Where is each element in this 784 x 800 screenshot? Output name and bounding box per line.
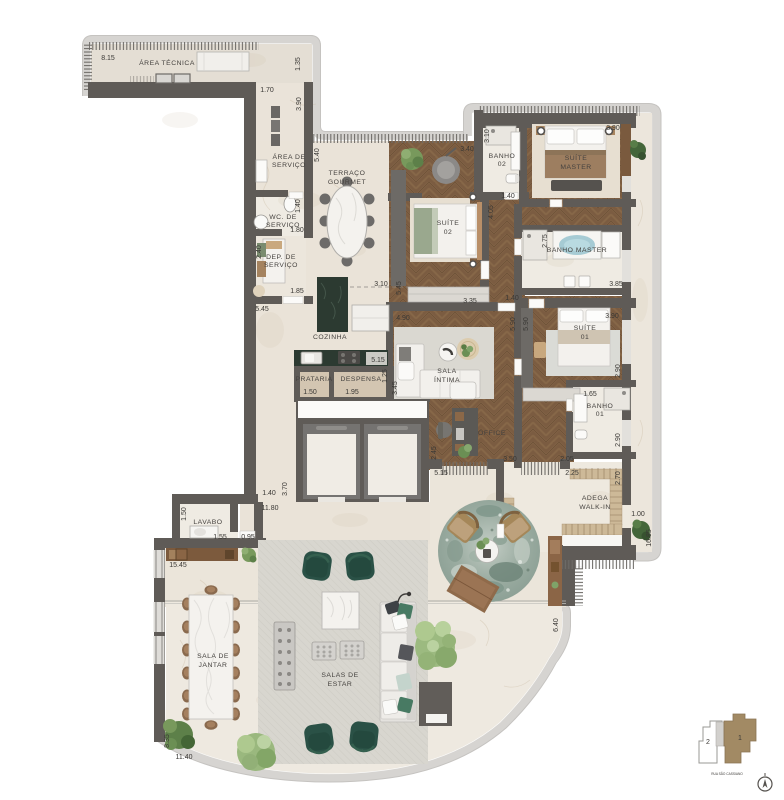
svg-text:11.40: 11.40 (176, 754, 193, 761)
svg-text:ÁREA TÉCNICA: ÁREA TÉCNICA (139, 58, 195, 67)
svg-text:ÍNTIMA: ÍNTIMA (434, 375, 460, 384)
svg-text:5.45: 5.45 (255, 306, 269, 313)
svg-text:PRATARIA: PRATARIA (296, 376, 333, 383)
svg-text:SALAS DE: SALAS DE (321, 672, 358, 679)
svg-text:1.65: 1.65 (583, 391, 597, 398)
svg-text:1.50: 1.50 (303, 389, 317, 396)
svg-text:2.45: 2.45 (431, 446, 438, 460)
svg-text:1.40: 1.40 (262, 490, 276, 497)
svg-text:2.75: 2.75 (542, 234, 549, 248)
svg-text:02: 02 (498, 161, 507, 168)
svg-text:0.95: 0.95 (241, 534, 255, 541)
svg-text:16.85: 16.85 (646, 529, 653, 547)
svg-text:2: 2 (706, 739, 710, 746)
svg-text:5.90: 5.90 (510, 317, 517, 331)
svg-text:GOURMET: GOURMET (328, 179, 366, 186)
svg-text:1.40: 1.40 (295, 199, 302, 213)
svg-text:SALA DE: SALA DE (197, 653, 229, 660)
svg-text:3.70: 3.70 (282, 482, 289, 496)
svg-text:1.35: 1.35 (295, 57, 302, 71)
svg-text:2.70: 2.70 (615, 471, 622, 485)
svg-text:DESPENSA: DESPENSA (340, 376, 381, 383)
svg-text:1.40: 1.40 (505, 295, 519, 302)
svg-text:3.10: 3.10 (484, 129, 491, 143)
svg-text:5.15: 5.15 (434, 470, 448, 477)
svg-text:3.90: 3.90 (605, 313, 619, 320)
svg-text:3.90: 3.90 (606, 125, 620, 132)
svg-text:COZINHA: COZINHA (313, 334, 347, 341)
svg-text:3.85: 3.85 (609, 281, 623, 288)
svg-text:BANHO: BANHO (587, 403, 614, 410)
svg-text:11.80: 11.80 (262, 505, 279, 512)
svg-text:3.10: 3.10 (374, 281, 388, 288)
svg-text:1.95: 1.95 (345, 389, 359, 396)
svg-text:6.40: 6.40 (553, 618, 560, 632)
svg-text:WALK-IN: WALK-IN (579, 504, 611, 511)
svg-text:5.90: 5.90 (523, 317, 530, 331)
svg-text:SALA: SALA (437, 368, 456, 375)
svg-text:1.80: 1.80 (290, 227, 304, 234)
svg-text:TERRAÇO: TERRAÇO (329, 170, 366, 177)
svg-text:1.40: 1.40 (501, 193, 515, 200)
svg-text:4.90: 4.90 (396, 315, 410, 322)
svg-text:SERVIÇO: SERVIÇO (264, 262, 298, 269)
svg-text:2.40: 2.40 (256, 245, 263, 259)
svg-text:1.85: 1.85 (290, 288, 304, 295)
svg-text:1.55: 1.55 (213, 534, 227, 541)
svg-text:ADEGA: ADEGA (582, 495, 608, 502)
svg-text:02: 02 (444, 229, 453, 236)
svg-text:MASTER: MASTER (560, 164, 591, 171)
svg-text:4.05: 4.05 (488, 205, 495, 219)
svg-text:BANHO: BANHO (489, 153, 516, 160)
svg-text:8.15: 8.15 (101, 55, 115, 62)
svg-text:SUÍTE: SUÍTE (437, 218, 460, 227)
svg-text:BANHO MASTER: BANHO MASTER (547, 247, 607, 254)
svg-text:ESTAR: ESTAR (328, 681, 353, 688)
svg-text:WC. DE: WC. DE (269, 214, 297, 221)
svg-text:2.90: 2.90 (615, 433, 622, 447)
svg-text:5.40: 5.40 (314, 148, 321, 162)
svg-text:01: 01 (596, 411, 605, 418)
svg-text:5.45: 5.45 (396, 281, 403, 295)
svg-text:SUÍTE: SUÍTE (574, 323, 597, 332)
svg-text:JANTAR: JANTAR (199, 662, 228, 669)
svg-text:SUÍTE: SUÍTE (565, 153, 588, 162)
svg-text:1.50: 1.50 (181, 507, 188, 521)
svg-text:3.90: 3.90 (296, 97, 303, 111)
svg-text:2.90: 2.90 (615, 364, 622, 378)
svg-text:1: 1 (738, 735, 742, 742)
svg-text:SERVIÇO: SERVIÇO (272, 162, 306, 169)
svg-text:OFFICE: OFFICE (478, 430, 506, 437)
svg-text:RUA SÃO CASSIANO: RUA SÃO CASSIANO (711, 771, 743, 776)
svg-text:5.15: 5.15 (371, 357, 385, 364)
svg-text:DEP. DE: DEP. DE (266, 254, 296, 261)
svg-text:3.50: 3.50 (503, 456, 517, 463)
svg-text:1.70: 1.70 (260, 87, 274, 94)
svg-text:ÁREA DE: ÁREA DE (273, 152, 306, 161)
svg-text:2.05: 2.05 (560, 456, 574, 463)
svg-text:8.35: 8.35 (164, 734, 171, 748)
svg-text:3.40: 3.40 (460, 146, 474, 153)
svg-text:1.00: 1.00 (631, 511, 645, 518)
svg-text:01: 01 (581, 334, 590, 341)
svg-text:LAVABO: LAVABO (193, 519, 222, 526)
svg-text:3.35: 3.35 (463, 298, 477, 305)
svg-text:2.25: 2.25 (565, 470, 579, 477)
svg-text:3.45: 3.45 (392, 381, 399, 395)
svg-text:1.25: 1.25 (382, 369, 389, 383)
svg-text:15.45: 15.45 (169, 562, 187, 569)
